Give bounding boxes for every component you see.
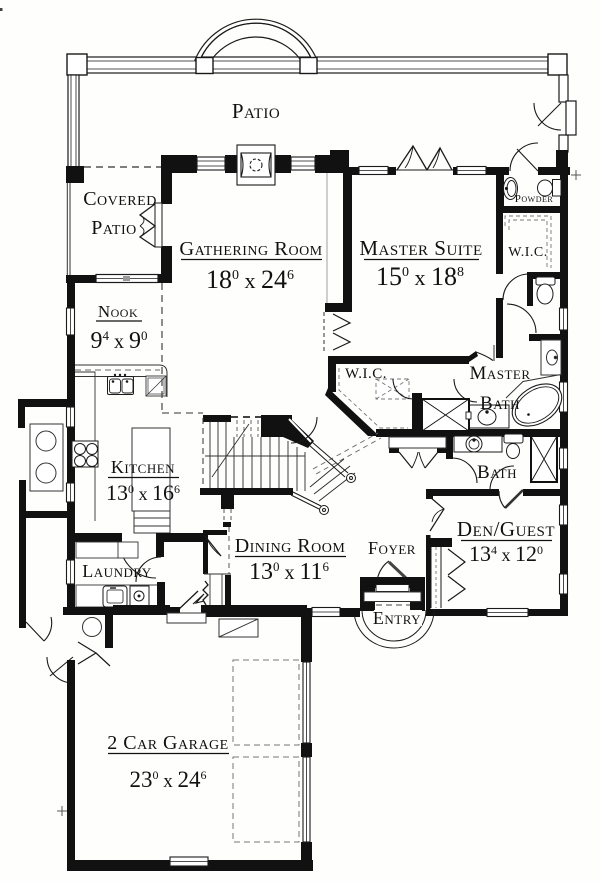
svg-text:W.I.C.: W.I.C.	[508, 245, 547, 260]
svg-text:Master: Master	[469, 363, 530, 384]
svg-text:2 Car Garage: 2 Car Garage	[107, 732, 228, 754]
svg-text:Dining Room: Dining Room	[235, 535, 346, 557]
svg-text:180 x 246: 180 x 246	[206, 265, 294, 294]
svg-text:130 x 166: 130 x 166	[106, 480, 180, 505]
svg-text:Master Suite: Master Suite	[359, 236, 482, 260]
svg-text:130 x 116: 130 x 116	[249, 559, 330, 585]
svg-text:Patio: Patio	[91, 217, 137, 239]
svg-text:Bath: Bath	[480, 393, 520, 414]
svg-text:Powder: Powder	[515, 193, 554, 205]
svg-text:Gathering Room: Gathering Room	[179, 238, 322, 260]
svg-text:150 x 188: 150 x 188	[376, 262, 464, 291]
svg-text:Laundry: Laundry	[82, 561, 152, 581]
svg-text:Foyer: Foyer	[368, 538, 416, 558]
svg-text:Den/Guest: Den/Guest	[457, 517, 555, 541]
svg-text:134 x 120: 134 x 120	[469, 541, 543, 566]
svg-text:Nook: Nook	[98, 302, 138, 321]
svg-text:94 x 90: 94 x 90	[91, 328, 148, 354]
svg-text:Entry: Entry	[373, 608, 421, 628]
svg-text:Patio: Patio	[232, 99, 280, 123]
svg-text:Covered: Covered	[83, 188, 157, 210]
svg-text:Kitchen: Kitchen	[111, 457, 175, 477]
svg-text:W.I.C.: W.I.C.	[345, 366, 387, 382]
svg-text:230 x 246: 230 x 246	[130, 767, 207, 792]
